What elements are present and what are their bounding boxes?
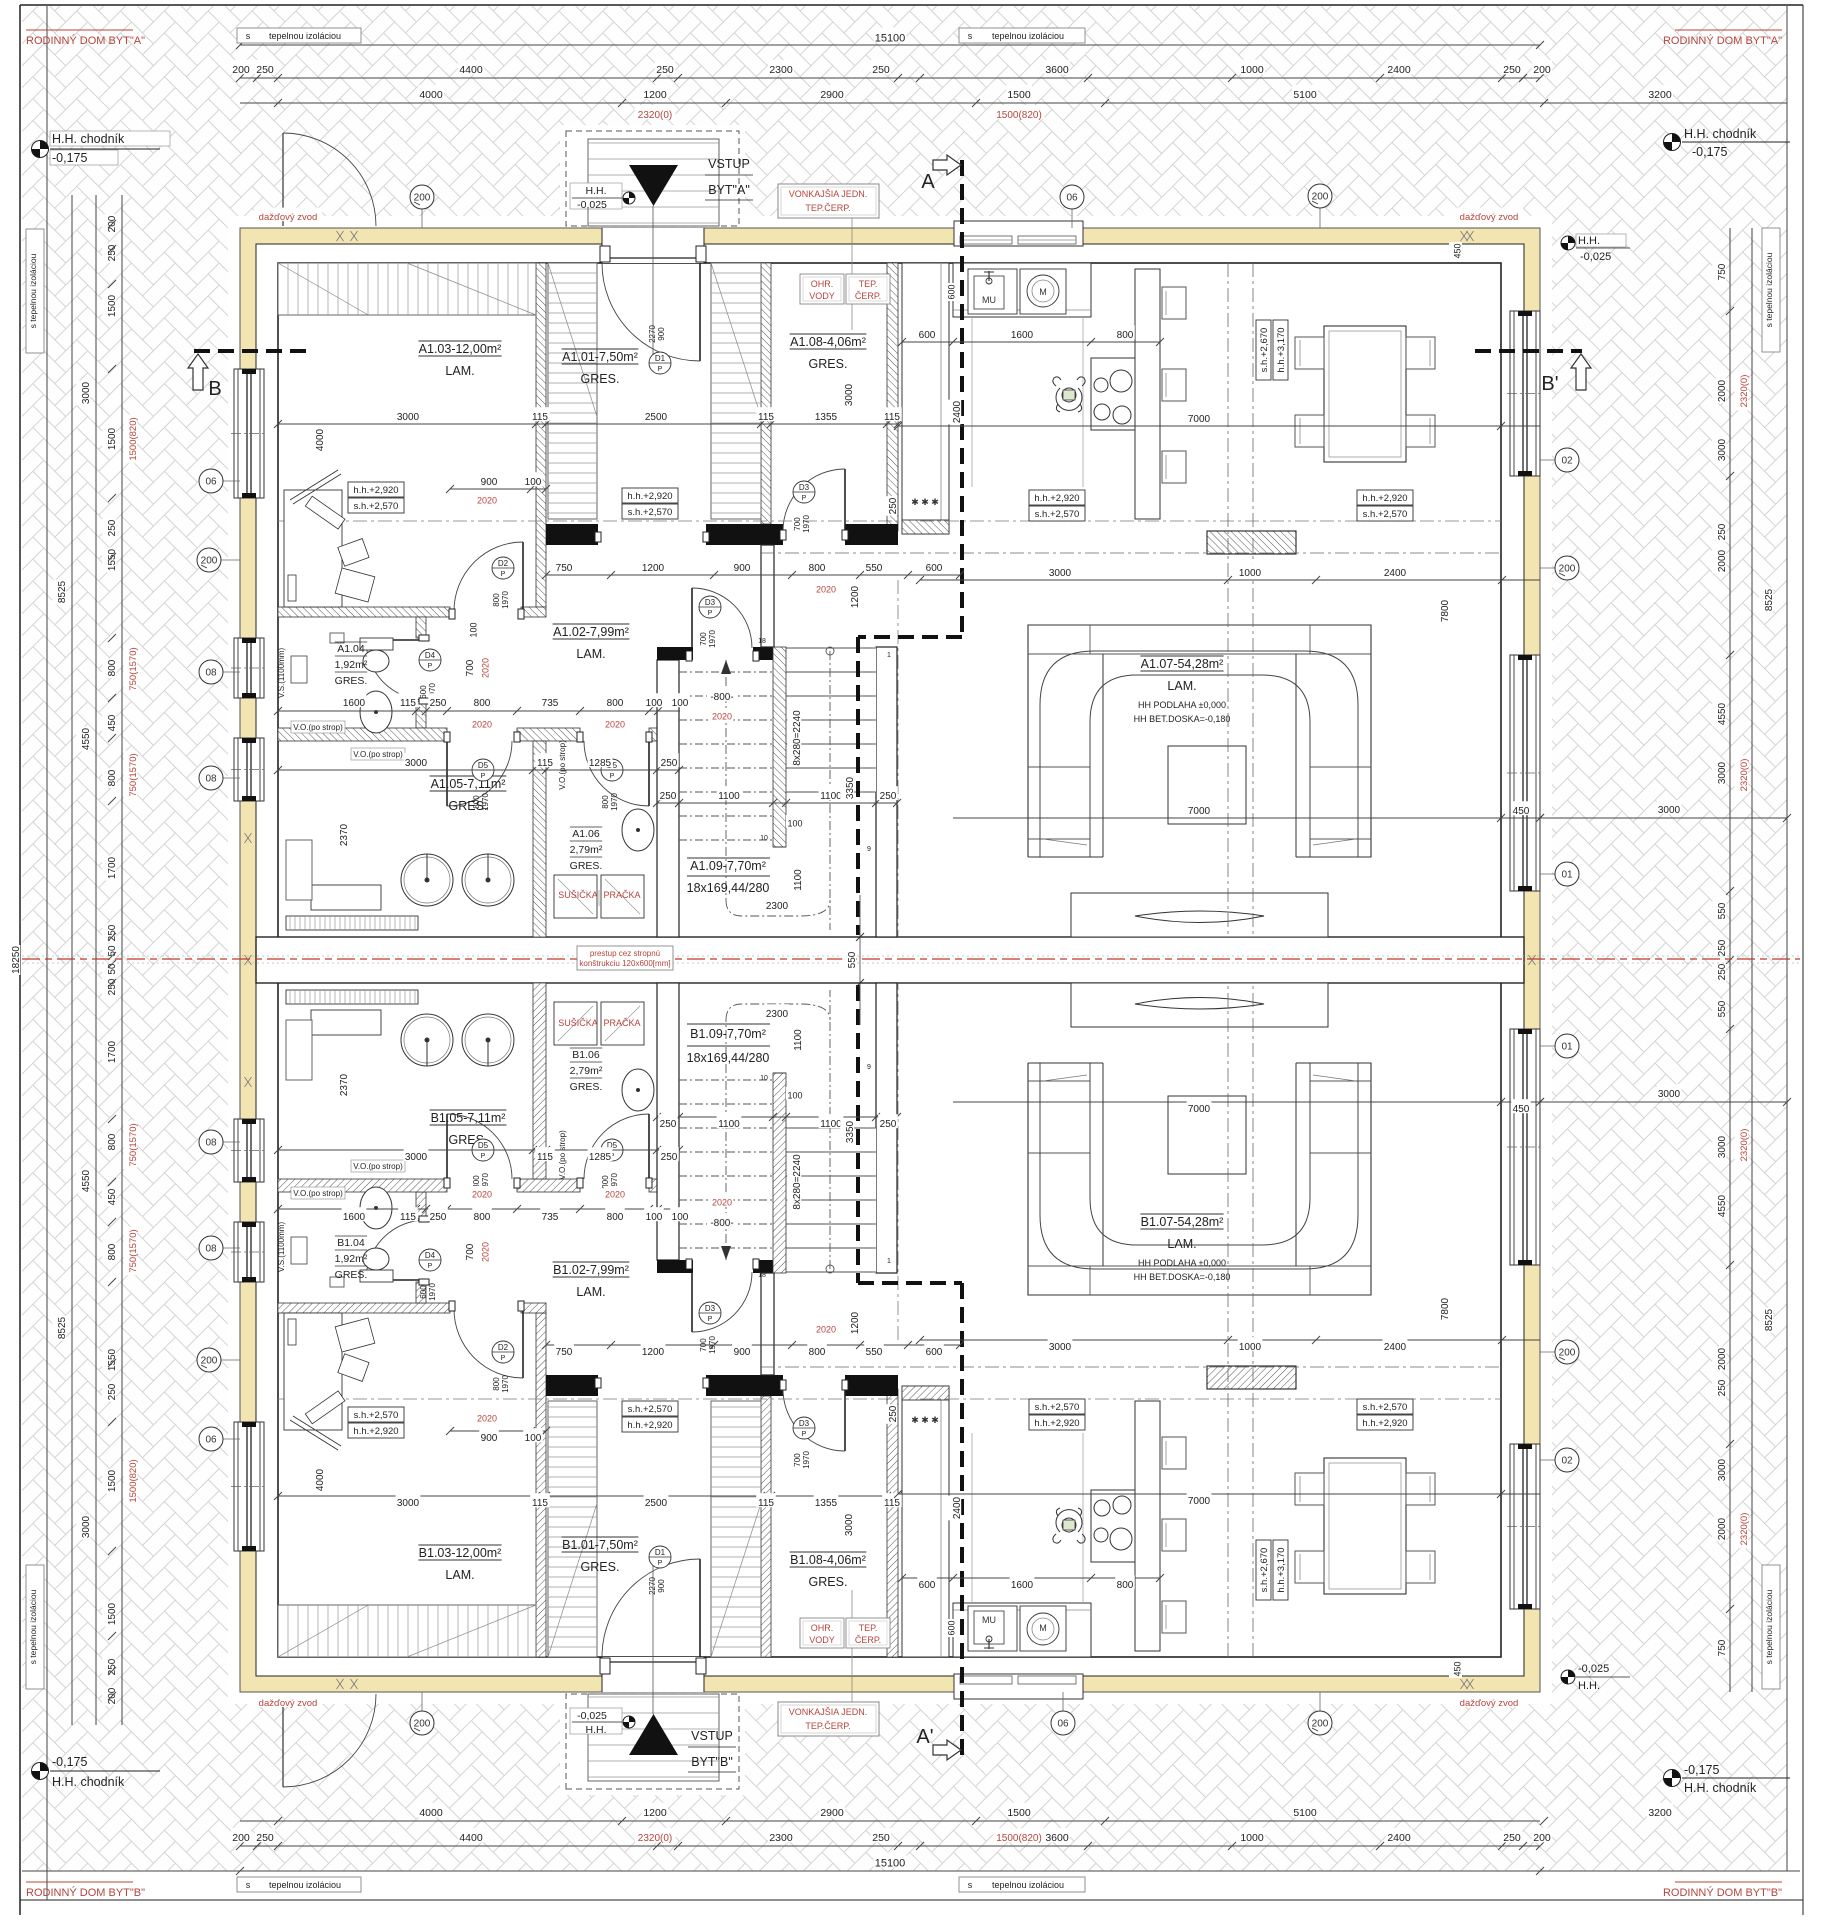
svg-text:250: 250: [1503, 1832, 1521, 1844]
svg-text:2370: 2370: [339, 1073, 350, 1096]
svg-text:1,92m²: 1,92m²: [335, 1253, 368, 1265]
svg-text:2270: 2270: [648, 1577, 657, 1595]
svg-text:GRES.: GRES.: [809, 1575, 848, 1589]
svg-text:-800-: -800-: [710, 1218, 733, 1229]
svg-text:200: 200: [1559, 564, 1576, 575]
svg-text:3600: 3600: [1045, 1832, 1069, 1844]
svg-text:2400: 2400: [952, 400, 963, 423]
svg-text:1100: 1100: [718, 791, 740, 802]
svg-text:1355: 1355: [815, 1498, 838, 1509]
svg-text:V.O.(po strop): V.O.(po strop): [293, 1189, 343, 1198]
svg-text:B': B': [1541, 373, 1558, 395]
svg-text:s.h.+2,570: s.h.+2,570: [1035, 509, 1080, 520]
svg-text:MU: MU: [982, 1615, 996, 1625]
svg-text:3000: 3000: [81, 1515, 92, 1538]
svg-text:1100: 1100: [793, 869, 804, 891]
svg-text:tepelnou izoláciou: tepelnou izoláciou: [992, 1880, 1064, 1890]
svg-text:100: 100: [672, 698, 689, 709]
svg-text:01: 01: [1561, 870, 1573, 881]
svg-text:1100: 1100: [793, 1029, 804, 1051]
svg-text:8525: 8525: [57, 1316, 68, 1339]
svg-text:LAM.: LAM.: [445, 364, 474, 378]
svg-text:18x169,44/280: 18x169,44/280: [687, 881, 770, 895]
svg-text:02: 02: [1561, 1456, 1573, 1467]
svg-text:HH PODLAHA ±0,000: HH PODLAHA ±0,000: [1138, 1258, 1226, 1268]
svg-text:1700: 1700: [107, 1040, 118, 1063]
svg-text:-0,025: -0,025: [577, 199, 607, 211]
svg-text:VONKAJŠIA JEDN.: VONKAJŠIA JEDN.: [789, 189, 868, 199]
svg-text:2020: 2020: [472, 720, 492, 730]
svg-text:1: 1: [887, 652, 891, 659]
svg-text:tepelnou izoláciou: tepelnou izoláciou: [269, 1880, 341, 1890]
svg-text:550: 550: [866, 1347, 883, 1358]
svg-text:2400: 2400: [952, 1496, 963, 1519]
svg-text:1600: 1600: [1011, 330, 1034, 341]
svg-text:550: 550: [847, 951, 858, 968]
svg-text:600: 600: [947, 284, 957, 299]
svg-text:2020: 2020: [816, 1325, 836, 1335]
svg-text:600: 600: [947, 1620, 957, 1635]
svg-text:115: 115: [537, 1152, 553, 1163]
svg-text:1500: 1500: [1007, 89, 1031, 101]
svg-text:18x169,44/280: 18x169,44/280: [687, 1051, 770, 1065]
svg-text:A1.01-7,50m²: A1.01-7,50m²: [562, 350, 638, 364]
svg-text:7800: 7800: [1440, 1297, 1451, 1320]
svg-text:3000: 3000: [397, 1498, 420, 1509]
svg-text:s.h.+2,670: s.h.+2,670: [1259, 1548, 1270, 1593]
svg-text:A1.08-4,06m²: A1.08-4,06m²: [790, 335, 866, 349]
svg-text:1700: 1700: [107, 856, 118, 879]
svg-text:250: 250: [1717, 1379, 1728, 1396]
svg-text:1970: 1970: [501, 1375, 510, 1393]
svg-text:H.H.: H.H.: [1578, 1680, 1600, 1692]
svg-text:750(1570): 750(1570): [128, 647, 139, 690]
svg-text:3000: 3000: [405, 758, 428, 769]
svg-text:P: P: [501, 571, 506, 578]
svg-text:1200: 1200: [643, 1807, 667, 1819]
svg-text:OHR.: OHR.: [811, 279, 834, 289]
svg-text:H.H.: H.H.: [586, 185, 607, 197]
svg-text:100: 100: [646, 698, 663, 709]
svg-text:VSTUP: VSTUP: [708, 157, 750, 171]
svg-text:s tepelnou izoláciou: s tepelnou izoláciou: [1764, 252, 1774, 327]
svg-text:1100: 1100: [820, 1119, 842, 1130]
svg-text:250: 250: [430, 698, 447, 709]
svg-text:450: 450: [1513, 1104, 1530, 1115]
svg-text:100: 100: [469, 622, 479, 637]
svg-text:3000: 3000: [1049, 568, 1072, 579]
svg-text:V.O.(po strop): V.O.(po strop): [558, 740, 567, 790]
svg-text:450: 450: [107, 714, 118, 731]
svg-text:A1.04: A1.04: [337, 643, 365, 655]
svg-text:2020: 2020: [477, 496, 497, 506]
svg-text:A1.03-12,00m²: A1.03-12,00m²: [419, 342, 502, 356]
svg-text:s.h.+2,670: s.h.+2,670: [1259, 328, 1270, 373]
svg-text:1500: 1500: [107, 294, 118, 317]
svg-text:100: 100: [787, 1091, 802, 1101]
svg-text:2320(0): 2320(0): [638, 1833, 672, 1844]
svg-text:1500: 1500: [1007, 1807, 1031, 1819]
svg-text:SUŠIČKA: SUŠIČKA: [558, 1018, 598, 1028]
svg-text:M: M: [1039, 287, 1047, 297]
svg-text:250: 250: [1717, 939, 1728, 956]
svg-text:s.h.+2,570: s.h.+2,570: [628, 1404, 673, 1415]
svg-text:2000: 2000: [1717, 379, 1728, 402]
svg-text:2000: 2000: [1717, 1347, 1728, 1370]
svg-text:800: 800: [107, 1243, 118, 1260]
svg-text:-0,175: -0,175: [1684, 1763, 1719, 1777]
svg-text:800: 800: [474, 698, 491, 709]
svg-text:P: P: [708, 610, 713, 617]
svg-text:2020: 2020: [481, 1242, 491, 1262]
svg-text:3000: 3000: [844, 383, 855, 406]
svg-text:P: P: [658, 366, 663, 373]
svg-text:✱ ✱ ✱: ✱ ✱ ✱: [911, 497, 939, 507]
svg-text:3000: 3000: [1658, 1089, 1681, 1100]
svg-text:PRAČKA: PRAČKA: [603, 1018, 640, 1028]
svg-text:250: 250: [256, 64, 274, 76]
svg-text:115: 115: [884, 412, 900, 423]
svg-text:200: 200: [414, 1719, 431, 1730]
svg-text:1970: 1970: [708, 630, 717, 648]
svg-text:600: 600: [926, 1347, 943, 1358]
svg-text:2320(0): 2320(0): [1739, 375, 1750, 408]
svg-text:V.O.(po strop): V.O.(po strop): [558, 1130, 567, 1180]
svg-text:P: P: [802, 495, 807, 502]
svg-text:P: P: [501, 1355, 506, 1362]
svg-text:735: 735: [542, 1212, 559, 1223]
svg-text:B1.01-7,50m²: B1.01-7,50m²: [562, 1538, 638, 1552]
svg-text:200: 200: [201, 1356, 218, 1367]
svg-text:TEP.: TEP.: [859, 1623, 878, 1633]
svg-text:9: 9: [867, 846, 871, 853]
svg-text:2900: 2900: [820, 89, 844, 101]
svg-text:4550: 4550: [81, 727, 92, 750]
svg-text:200: 200: [1559, 1348, 1576, 1359]
svg-text:GRES.: GRES.: [335, 1269, 368, 1281]
svg-text:PRAČKA: PRAČKA: [603, 890, 640, 900]
svg-text:800: 800: [1117, 1580, 1134, 1591]
svg-text:TEP.ČERP.: TEP.ČERP.: [805, 1721, 850, 1731]
svg-text:450: 450: [1453, 243, 1463, 258]
svg-text:4400: 4400: [459, 64, 483, 76]
svg-text:s tepelnou izoláciou: s tepelnou izoláciou: [28, 253, 38, 328]
svg-text:800: 800: [474, 1212, 491, 1223]
svg-text:735: 735: [542, 698, 559, 709]
svg-text:750: 750: [556, 1347, 573, 1358]
svg-text:P: P: [428, 1263, 433, 1270]
svg-text:4550: 4550: [1717, 702, 1728, 725]
svg-text:1970: 1970: [481, 793, 490, 811]
svg-text:D3: D3: [799, 1419, 810, 1428]
svg-text:2000: 2000: [1717, 549, 1728, 572]
svg-text:s tepelnou izoláciou: s tepelnou izoláciou: [28, 1589, 38, 1664]
svg-text:3350: 3350: [845, 776, 856, 799]
svg-text:1200: 1200: [642, 563, 665, 574]
svg-text:600: 600: [419, 1285, 428, 1299]
svg-text:08: 08: [205, 1244, 217, 1255]
svg-text:dažďový zvod: dažďový zvod: [259, 212, 318, 223]
svg-text:D5: D5: [478, 1141, 489, 1150]
svg-text:06: 06: [205, 1435, 217, 1446]
svg-text:dažďový zvod: dažďový zvod: [1460, 212, 1519, 223]
svg-text:VSTUP: VSTUP: [691, 1729, 733, 1743]
svg-text:konštrukciu 120x600[mm]: konštrukciu 120x600[mm]: [579, 959, 670, 968]
svg-text:250: 250: [872, 1832, 890, 1844]
svg-text:P: P: [708, 1316, 713, 1323]
svg-text:8x280=2240: 8x280=2240: [792, 1154, 803, 1210]
svg-text:✱ ✱ ✱: ✱ ✱ ✱: [911, 1415, 939, 1425]
svg-text:2020: 2020: [816, 585, 836, 595]
svg-text:V.O.(po strop): V.O.(po strop): [353, 1162, 403, 1171]
svg-text:B1.08-4,06m²: B1.08-4,06m²: [790, 1553, 866, 1567]
svg-text:ČERP.: ČERP.: [855, 291, 881, 301]
svg-text:7000: 7000: [1188, 1496, 1211, 1507]
svg-text:1600: 1600: [343, 1212, 366, 1223]
svg-text:2020: 2020: [481, 658, 491, 678]
svg-text:V.S.(1100mm): V.S.(1100mm): [277, 1222, 286, 1273]
svg-text:1285: 1285: [589, 1152, 612, 1163]
svg-text:1550: 1550: [107, 1348, 118, 1371]
svg-text:700: 700: [465, 659, 476, 676]
svg-text:450: 450: [1513, 806, 1530, 817]
svg-text:HH BET.DOSKA=-0,180: HH BET.DOSKA=-0,180: [1134, 1272, 1231, 1282]
svg-text:VONKAJŠIA JEDN.: VONKAJŠIA JEDN.: [789, 1707, 868, 1717]
svg-text:50: 50: [107, 963, 118, 975]
svg-text:s.h.+2,570: s.h.+2,570: [1363, 509, 1408, 520]
svg-text:8525: 8525: [1764, 1308, 1775, 1331]
svg-text:2300: 2300: [766, 1009, 789, 1020]
svg-text:LAM.: LAM.: [576, 647, 605, 661]
svg-text:115: 115: [537, 758, 553, 769]
svg-text:800: 800: [607, 698, 624, 709]
svg-text:BYT"A": BYT"A": [708, 183, 750, 197]
svg-text:B1.05-7,11m²: B1.05-7,11m²: [431, 1111, 506, 1125]
svg-text:BYT"B": BYT"B": [691, 1755, 733, 1769]
svg-text:GRES.: GRES.: [581, 1560, 620, 1574]
svg-text:GRES.: GRES.: [335, 675, 368, 687]
svg-text:A1.02-7,99m²: A1.02-7,99m²: [553, 625, 629, 639]
svg-text:250: 250: [107, 519, 118, 536]
svg-text:1500: 1500: [107, 427, 118, 450]
svg-text:VODY: VODY: [809, 291, 835, 301]
svg-text:ČERP.: ČERP.: [855, 1635, 881, 1645]
svg-text:A1.07-54,28m²: A1.07-54,28m²: [1141, 657, 1224, 671]
svg-text:LAM.: LAM.: [445, 1568, 474, 1582]
svg-text:1100: 1100: [718, 1119, 740, 1130]
svg-text:M: M: [1039, 1623, 1047, 1633]
svg-text:8x280=2240: 8x280=2240: [792, 710, 803, 766]
svg-text:TEP.: TEP.: [859, 279, 878, 289]
svg-text:2400: 2400: [1384, 568, 1407, 579]
svg-text:900: 900: [657, 1579, 666, 1593]
svg-text:250: 250: [888, 497, 899, 514]
svg-text:450: 450: [107, 1188, 118, 1205]
svg-text:115: 115: [884, 1498, 900, 1509]
svg-text:P: P: [658, 1560, 663, 1567]
svg-text:1200: 1200: [642, 1347, 665, 1358]
svg-text:1600: 1600: [1011, 1580, 1034, 1591]
svg-text:700: 700: [793, 517, 802, 531]
svg-text:h.h.+2,920: h.h.+2,920: [353, 485, 398, 496]
svg-text:2500: 2500: [645, 412, 668, 423]
svg-text:250: 250: [1717, 963, 1728, 980]
svg-text:3200: 3200: [1648, 1807, 1672, 1819]
svg-text:LAM.: LAM.: [576, 1285, 605, 1299]
svg-text:h.h.+2,920: h.h.+2,920: [1362, 493, 1407, 504]
svg-text:A1.09-7,70m²: A1.09-7,70m²: [690, 859, 766, 873]
svg-text:900: 900: [481, 477, 498, 488]
svg-text:750(1570): 750(1570): [128, 753, 139, 796]
svg-text:s.h.+2,570: s.h.+2,570: [354, 501, 399, 512]
svg-text:1000: 1000: [1239, 1342, 1262, 1353]
svg-text:3200: 3200: [1648, 89, 1672, 101]
svg-text:08: 08: [205, 1138, 217, 1149]
svg-text:H.H.: H.H.: [1578, 235, 1600, 247]
svg-text:1500(820): 1500(820): [128, 1459, 139, 1502]
svg-text:800: 800: [809, 563, 826, 574]
svg-text:250: 250: [256, 1832, 274, 1844]
svg-text:2300: 2300: [769, 64, 793, 76]
svg-text:4000: 4000: [315, 428, 326, 451]
svg-text:H.H. chodník: H.H. chodník: [1684, 1781, 1757, 1795]
svg-text:3000: 3000: [1717, 761, 1728, 784]
svg-text:GRES.: GRES.: [570, 860, 603, 872]
svg-text:2370: 2370: [339, 823, 350, 846]
svg-text:2400: 2400: [1387, 1832, 1411, 1844]
svg-text:h.h.+2,920: h.h.+2,920: [353, 1426, 398, 1437]
svg-text:5100: 5100: [1293, 1807, 1317, 1819]
svg-text:4000: 4000: [419, 89, 443, 101]
svg-text:900: 900: [481, 1433, 498, 1444]
svg-text:8525: 8525: [1764, 588, 1775, 611]
svg-text:250: 250: [660, 791, 677, 802]
svg-text:RODINNÝ DOM BYT"B": RODINNÝ DOM BYT"B": [1663, 1886, 1782, 1899]
svg-text:OHR.: OHR.: [811, 1623, 834, 1633]
svg-text:-0,175: -0,175: [52, 1755, 87, 1769]
svg-text:D3: D3: [705, 598, 716, 607]
svg-text:s: s: [246, 1880, 251, 1890]
svg-text:10: 10: [760, 835, 768, 842]
svg-text:9: 9: [867, 1064, 871, 1071]
svg-text:800: 800: [107, 659, 118, 676]
svg-text:800: 800: [1117, 330, 1134, 341]
svg-text:115: 115: [400, 698, 416, 709]
svg-text:-0,025: -0,025: [1578, 1663, 1609, 1675]
svg-text:h.h.+2,920: h.h.+2,920: [1034, 1418, 1079, 1429]
svg-text:4550: 4550: [81, 1169, 92, 1192]
svg-text:LAM.: LAM.: [1167, 679, 1196, 693]
svg-text:h.h.+2,920: h.h.+2,920: [627, 1420, 672, 1431]
svg-text:D3: D3: [705, 1304, 716, 1313]
svg-text:s.h.+2,570: s.h.+2,570: [1035, 1402, 1080, 1413]
svg-text:h.h.+2,920: h.h.+2,920: [1034, 493, 1079, 504]
svg-text:06: 06: [1057, 1719, 1069, 1730]
svg-text:200: 200: [1533, 1832, 1551, 1844]
svg-text:A': A': [916, 1726, 933, 1748]
svg-text:1500: 1500: [107, 1469, 118, 1492]
svg-text:2320(0): 2320(0): [1739, 759, 1750, 792]
svg-text:-800-: -800-: [710, 692, 733, 703]
svg-text:15100: 15100: [875, 1857, 906, 1869]
svg-text:TEP.ČERP.: TEP.ČERP.: [805, 203, 850, 213]
svg-text:250: 250: [430, 1212, 447, 1223]
svg-text:600: 600: [419, 685, 428, 699]
svg-text:s tepelnou izoláciou: s tepelnou izoláciou: [1764, 1589, 1774, 1664]
svg-text:1500(820): 1500(820): [996, 1833, 1042, 1844]
svg-text:D2: D2: [498, 1343, 509, 1352]
svg-text:H.H. chodník: H.H. chodník: [52, 132, 125, 146]
svg-text:-0,175: -0,175: [52, 151, 87, 165]
svg-text:s: s: [246, 31, 251, 41]
svg-text:800: 800: [107, 769, 118, 786]
svg-text:1970: 1970: [802, 1451, 811, 1469]
svg-text:B1.07-54,28m²: B1.07-54,28m²: [1141, 1215, 1224, 1229]
svg-text:1500(820): 1500(820): [996, 110, 1042, 121]
svg-text:h.h.+2,920: h.h.+2,920: [1362, 1418, 1407, 1429]
svg-text:550: 550: [866, 563, 883, 574]
svg-text:250: 250: [1717, 523, 1728, 540]
svg-text:P: P: [428, 663, 433, 670]
svg-text:900: 900: [734, 1347, 751, 1358]
svg-text:3350: 3350: [845, 1120, 856, 1143]
svg-text:4400: 4400: [459, 1832, 483, 1844]
svg-text:h.h.+3,170: h.h.+3,170: [1276, 327, 1287, 372]
svg-text:115: 115: [758, 412, 774, 423]
svg-text:115: 115: [400, 1212, 416, 1223]
svg-text:B: B: [208, 378, 221, 400]
svg-text:06: 06: [1066, 193, 1078, 204]
svg-text:2020: 2020: [605, 720, 625, 730]
svg-text:200: 200: [1312, 1719, 1329, 1730]
svg-text:115: 115: [532, 412, 548, 423]
svg-text:P: P: [481, 773, 486, 780]
svg-text:2400: 2400: [1387, 64, 1411, 76]
svg-text:18250: 18250: [11, 946, 22, 974]
svg-text:D1: D1: [655, 354, 666, 363]
svg-text:200: 200: [1312, 192, 1329, 203]
svg-text:550: 550: [1717, 902, 1728, 919]
svg-text:D3: D3: [799, 483, 810, 492]
svg-text:3000: 3000: [81, 381, 92, 404]
svg-text:1200: 1200: [850, 585, 861, 608]
svg-text:800: 800: [492, 1377, 501, 1391]
svg-text:GRES.: GRES.: [570, 1081, 603, 1093]
svg-text:A1.05-7,11m²: A1.05-7,11m²: [431, 777, 506, 791]
svg-text:1970: 1970: [802, 515, 811, 533]
svg-text:250: 250: [107, 1658, 118, 1675]
svg-text:2320(0): 2320(0): [638, 110, 672, 121]
svg-text:2900: 2900: [820, 1807, 844, 1819]
svg-text:115: 115: [758, 1498, 774, 1509]
svg-text:900: 900: [734, 563, 751, 574]
svg-text:1500(820): 1500(820): [128, 417, 139, 460]
svg-text:600: 600: [926, 563, 943, 574]
svg-text:1285: 1285: [589, 758, 612, 769]
svg-text:1100: 1100: [820, 791, 842, 802]
svg-text:250: 250: [880, 791, 897, 802]
svg-text:700: 700: [699, 632, 708, 646]
svg-text:750(1570): 750(1570): [128, 1123, 139, 1166]
svg-text:3000: 3000: [1049, 1342, 1072, 1353]
svg-text:7000: 7000: [1188, 1104, 1211, 1115]
svg-text:SUŠIČKA: SUŠIČKA: [558, 890, 598, 900]
svg-text:250: 250: [872, 64, 890, 76]
svg-text:-0,025: -0,025: [1580, 251, 1611, 263]
svg-text:1000: 1000: [1239, 568, 1262, 579]
svg-text:MU: MU: [982, 295, 996, 305]
svg-text:02: 02: [1561, 456, 1573, 467]
